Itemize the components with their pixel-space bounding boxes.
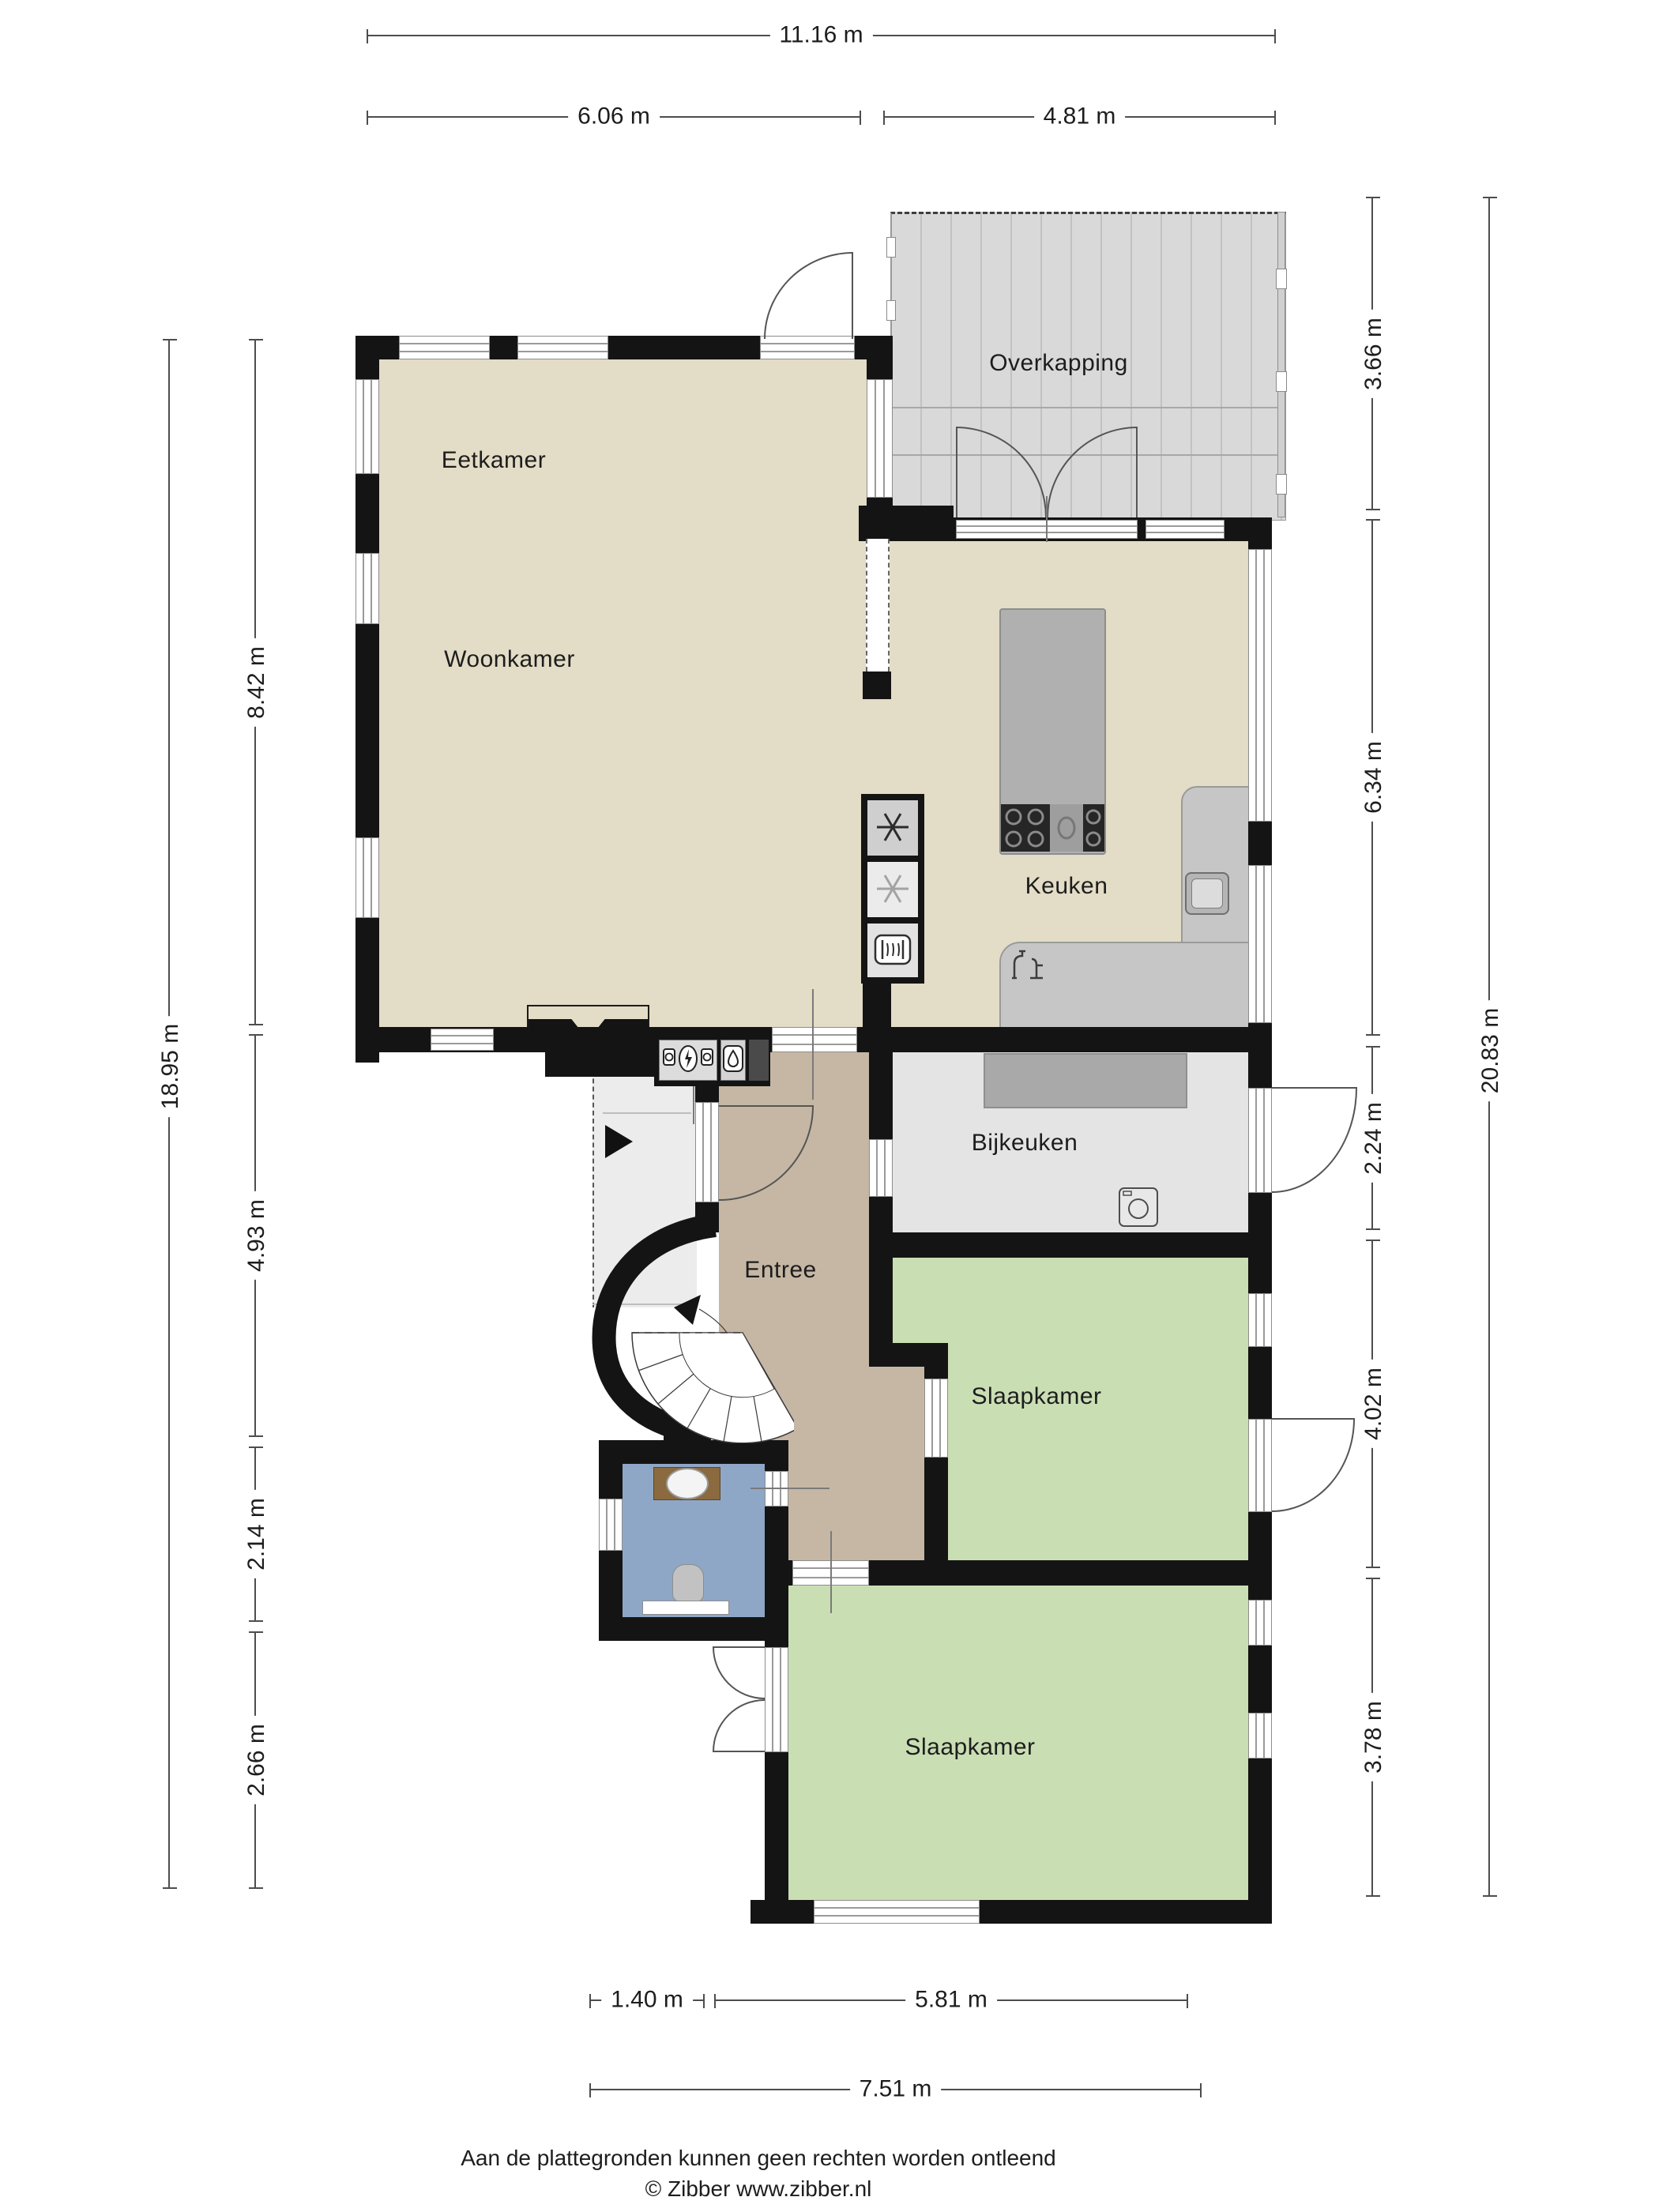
dishwasher-icon xyxy=(874,934,912,965)
floorplan-page: Overkapping Eetkamer Woonkamer Keuken Bi… xyxy=(0,0,1659,2212)
dimension-right-slaapkamer-1: 4.02 m xyxy=(1371,1240,1373,1567)
deck-post xyxy=(1276,474,1287,495)
dimension-right-keuken: 6.34 m xyxy=(1371,520,1373,1035)
dimension-top-total: 11.16 m xyxy=(367,35,1275,36)
wall-segment xyxy=(599,1440,788,1464)
door-swing-arc xyxy=(764,252,853,339)
dimension-bottom-bedroom: 5.81 m xyxy=(715,1999,1187,2001)
window xyxy=(355,379,379,474)
window xyxy=(1248,1600,1272,1646)
meter-panel xyxy=(659,1040,717,1081)
wall-segment xyxy=(599,1617,788,1641)
porch-step-line xyxy=(603,1112,691,1114)
window xyxy=(517,336,608,359)
wall-segment xyxy=(863,984,891,1029)
door-swing-arc xyxy=(1272,1088,1357,1193)
room-label-bijkeuken: Bijkeuken xyxy=(972,1130,1078,1157)
room-label-overkapping: Overkapping xyxy=(989,350,1128,377)
window xyxy=(1248,1713,1272,1759)
cooktop-icon xyxy=(1001,804,1104,852)
kitchen-sink xyxy=(1185,872,1229,915)
wall-segment xyxy=(869,1232,1248,1258)
shaft xyxy=(749,1040,769,1081)
marker-line xyxy=(830,1531,832,1613)
toilet-cistern xyxy=(642,1601,729,1615)
window xyxy=(399,336,490,359)
window xyxy=(1145,520,1224,539)
deck-post xyxy=(1276,371,1287,392)
dimension-left-bath: 2.14 m xyxy=(254,1447,256,1621)
dimension-left-bottom: 2.66 m xyxy=(254,1632,256,1888)
dimension-right-bijkeuken: 2.24 m xyxy=(1371,1047,1373,1229)
door-swing-arc xyxy=(713,1647,765,1699)
bathroom-sink xyxy=(666,1468,709,1499)
freezer-icon xyxy=(875,810,910,845)
toilet-icon xyxy=(672,1564,704,1602)
window xyxy=(1248,549,1272,822)
window xyxy=(1248,1293,1272,1347)
dimension-left-entree: 4.93 m xyxy=(254,1035,256,1436)
dimension-left-living: 8.42 m xyxy=(254,340,256,1025)
footer-credit: © Zibber www.zibber.nl xyxy=(0,2173,1517,2204)
passage-living-entree xyxy=(772,1027,857,1052)
room-label-woonkamer: Woonkamer xyxy=(444,646,575,673)
window xyxy=(355,553,379,624)
entrance-arrow-icon xyxy=(605,1125,633,1158)
wall-segment xyxy=(869,1052,893,1343)
room-label-slaapkamer-1: Slaapkamer xyxy=(971,1383,1101,1410)
open-passage xyxy=(866,539,890,671)
door-swing-arc xyxy=(1272,1419,1355,1512)
freezer-cabinet xyxy=(867,800,918,856)
kitchen-sink-basin xyxy=(1191,878,1223,908)
wall-segment xyxy=(869,1343,948,1367)
window xyxy=(867,379,893,498)
room-label-keuken: Keuken xyxy=(1025,873,1108,900)
faucet-icon xyxy=(1010,948,1043,980)
dimension-left-outer: 18.95 m xyxy=(168,340,170,1888)
utility-counter xyxy=(984,1053,1187,1108)
dimension-bottom-total: 7.51 m xyxy=(590,2089,1201,2090)
window xyxy=(814,1900,980,1924)
dimension-top-left: 6.06 m xyxy=(367,116,860,118)
electricity-meter-icon xyxy=(662,1043,716,1078)
door-opening xyxy=(1248,1419,1272,1512)
wall-segment xyxy=(859,506,954,541)
door-opening xyxy=(765,1647,788,1752)
water-meter-icon xyxy=(722,1044,744,1076)
marker-line xyxy=(812,989,814,1100)
window xyxy=(1248,865,1272,1023)
washing-machine-icon xyxy=(1119,1187,1158,1227)
footer-disclaimer: Aan de plattegronden kunnen geen rechten… xyxy=(0,2142,1517,2173)
stairs-arrow-icon xyxy=(674,1295,701,1325)
dimension-right-outer: 20.83 m xyxy=(1488,197,1490,1896)
marker-line xyxy=(750,1488,829,1489)
door-opening xyxy=(1248,1088,1272,1193)
room-label-eetkamer: Eetkamer xyxy=(442,447,546,474)
meter-panel xyxy=(720,1040,746,1081)
dimension-right-slaapkamer-2: 3.78 m xyxy=(1371,1578,1373,1896)
wall-segment xyxy=(545,1051,656,1077)
marker-line xyxy=(693,1086,694,1124)
door-bedroom-1 xyxy=(924,1379,948,1458)
wall-segment xyxy=(863,671,891,699)
dishwasher-cabinet xyxy=(867,924,918,977)
deck-post xyxy=(886,300,896,321)
spiral-staircase xyxy=(581,1214,794,1443)
window xyxy=(355,837,379,918)
dimension-top-right: 4.81 m xyxy=(884,116,1275,118)
deck-line xyxy=(891,407,1283,408)
deck-right-frame xyxy=(1277,212,1285,517)
fridge-icon xyxy=(875,871,910,906)
dimension-bottom-door: 1.40 m xyxy=(590,1999,704,2001)
passage-entree-utility xyxy=(869,1139,893,1197)
window xyxy=(599,1499,623,1551)
door-swing-arc xyxy=(713,1699,765,1751)
marker-line xyxy=(1046,496,1048,542)
door-opening xyxy=(760,336,855,359)
room-label-entree: Entree xyxy=(744,1257,816,1284)
wall-segment xyxy=(869,1027,1272,1052)
fridge-cabinet xyxy=(867,862,918,917)
deck-post xyxy=(1276,269,1287,289)
window xyxy=(431,1029,494,1051)
room-label-slaapkamer-2: Slaapkamer xyxy=(905,1734,1035,1761)
deck-post xyxy=(886,237,896,258)
dimension-right-overkapping: 3.66 m xyxy=(1371,197,1373,510)
front-door-opening xyxy=(695,1102,719,1202)
